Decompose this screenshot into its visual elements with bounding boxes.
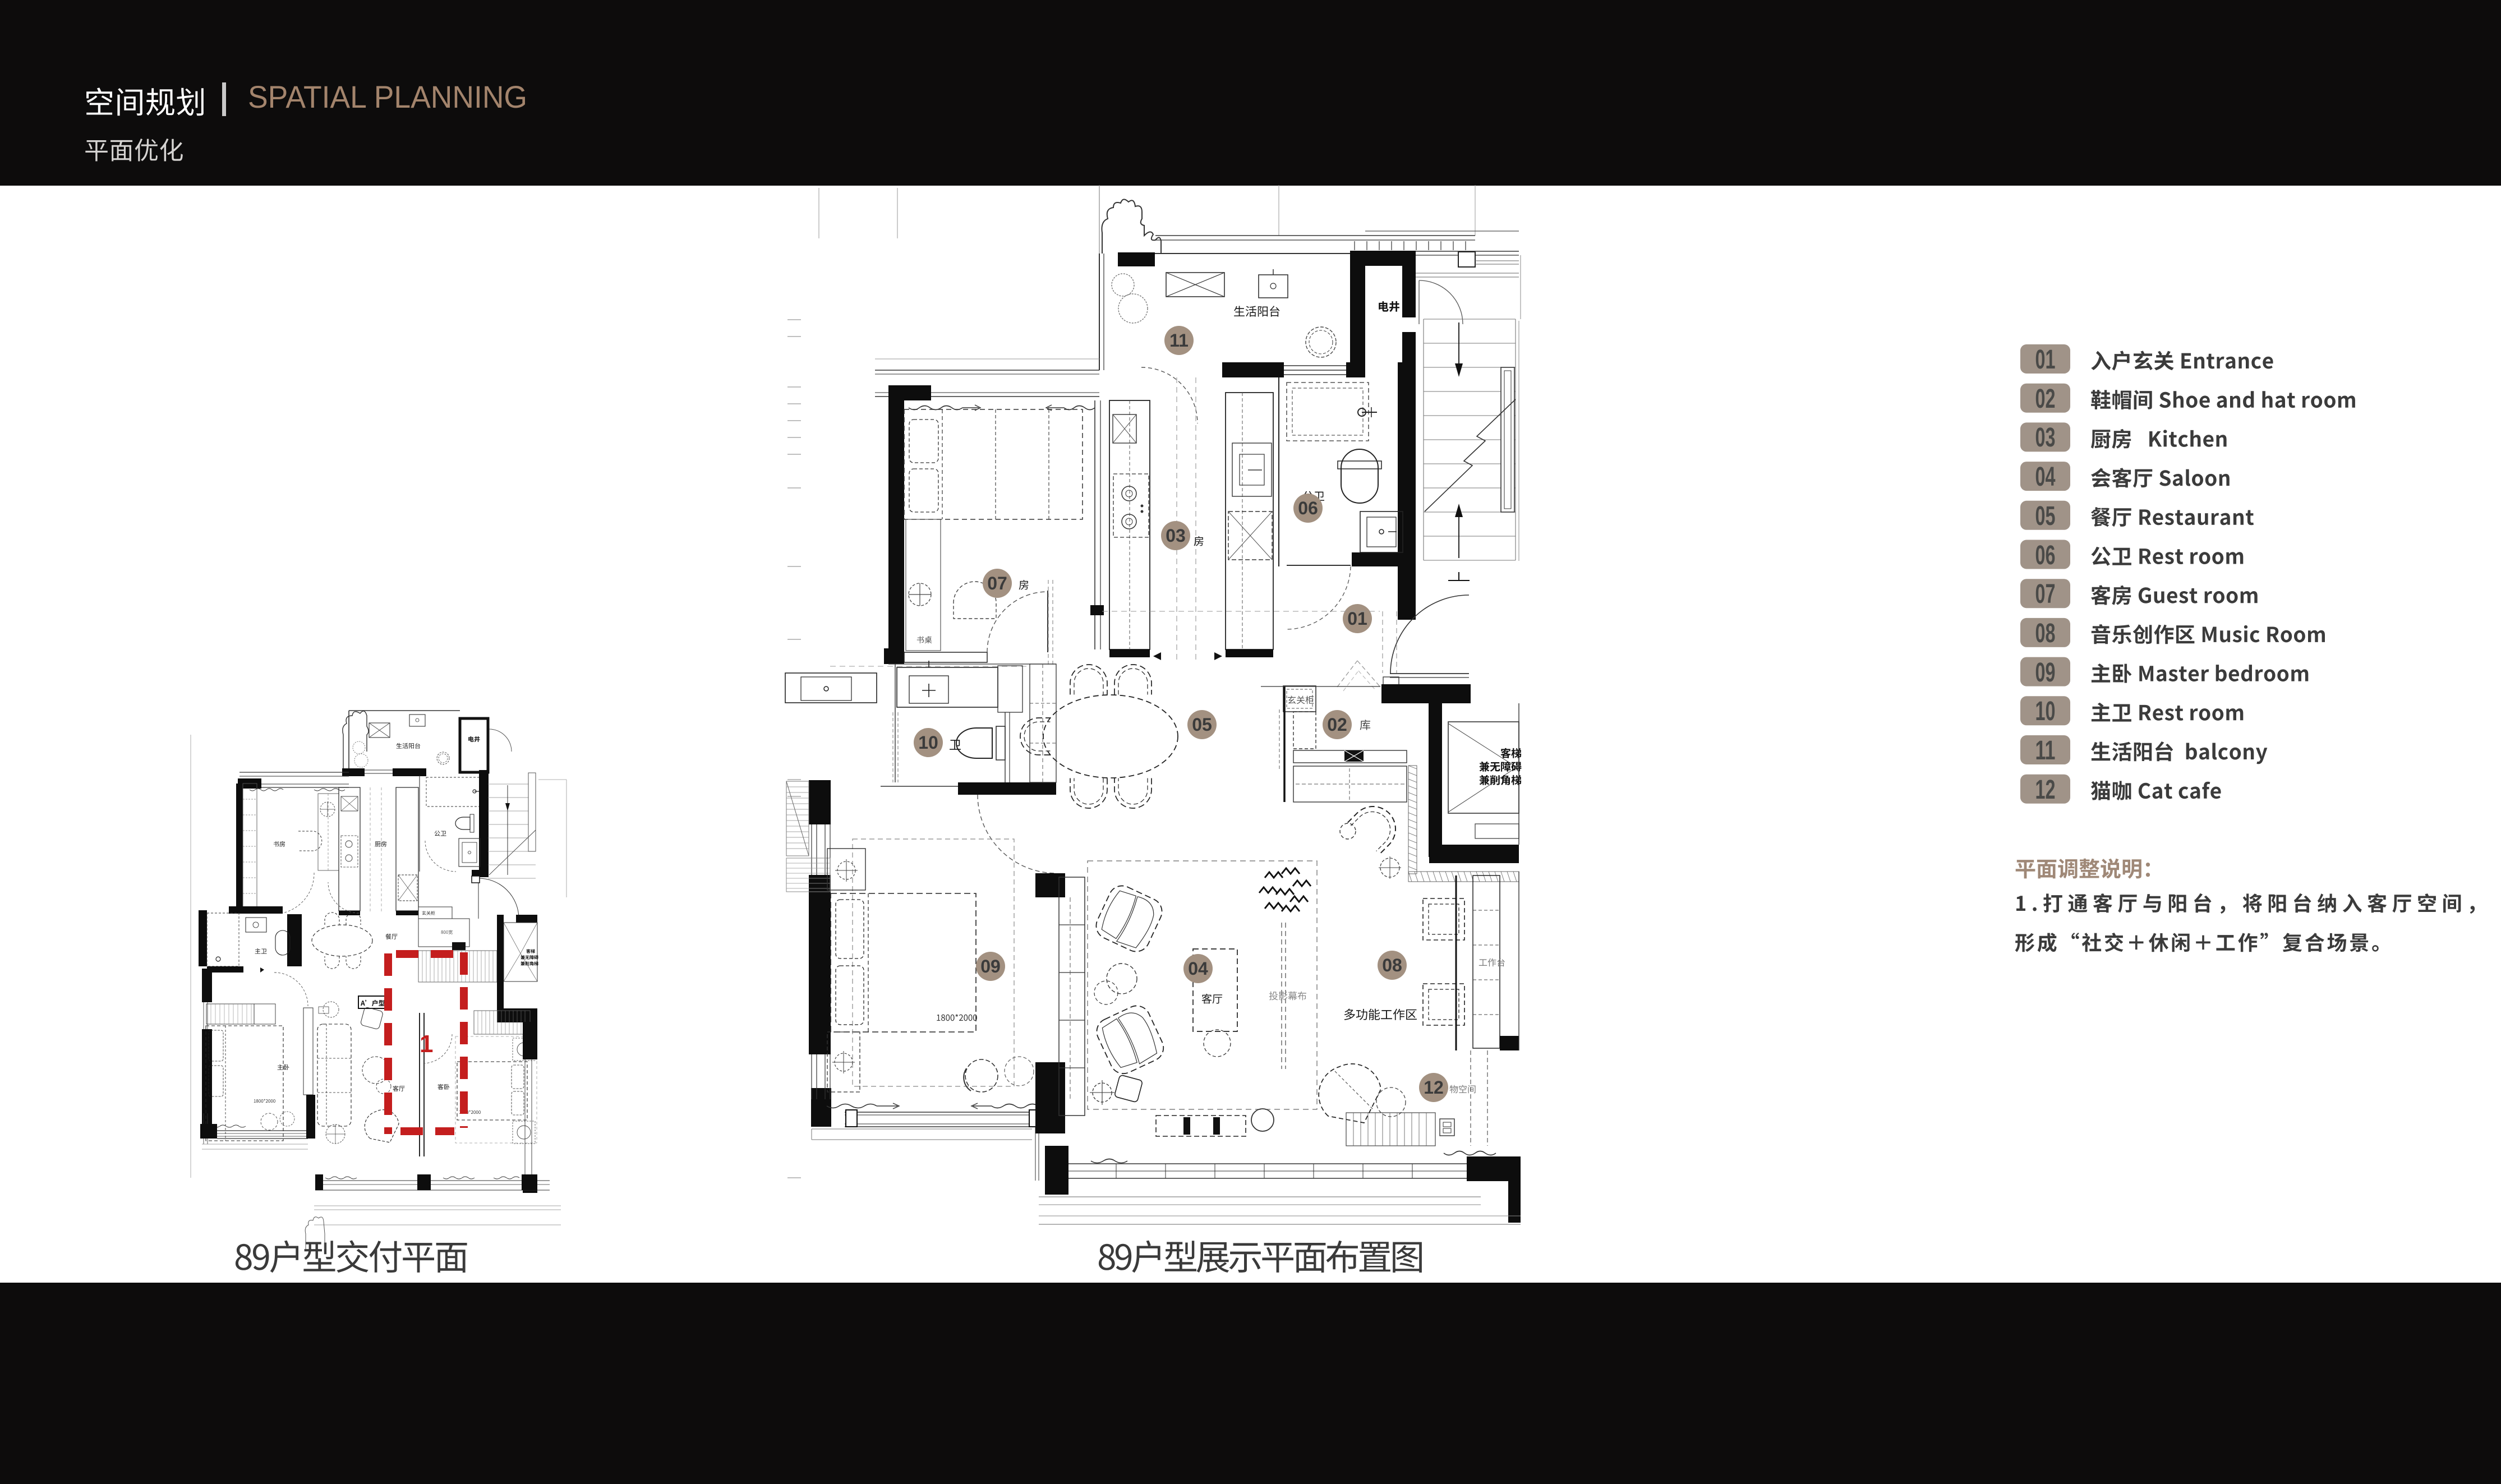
svg-text:05: 05 (1192, 715, 1212, 735)
svg-text:10: 10 (2035, 697, 2056, 726)
svg-text:1: 1 (420, 1030, 433, 1058)
svg-text:04: 04 (1188, 958, 1208, 979)
svg-text:03: 03 (1166, 526, 1186, 546)
svg-text:09: 09 (980, 956, 1001, 976)
svg-text:06: 06 (1298, 498, 1318, 518)
svg-text:02: 02 (2035, 384, 2056, 414)
svg-text:05: 05 (2035, 501, 2056, 531)
svg-text:11: 11 (1169, 330, 1189, 351)
svg-text:09: 09 (2035, 658, 2056, 688)
svg-text:04: 04 (2035, 462, 2056, 492)
svg-text:03: 03 (2035, 423, 2056, 453)
svg-text:SPATIAL PLANNING: SPATIAL PLANNING (248, 79, 527, 114)
svg-text:08: 08 (1382, 955, 1402, 975)
svg-text:06: 06 (2035, 541, 2056, 570)
svg-text:02: 02 (1327, 715, 1347, 735)
svg-text:12: 12 (2035, 775, 2056, 805)
svg-text:08: 08 (2035, 619, 2056, 648)
svg-text:10: 10 (918, 732, 938, 753)
svg-text:11: 11 (2035, 736, 2056, 766)
svg-text:07: 07 (987, 573, 1007, 593)
svg-text:12: 12 (1424, 1077, 1444, 1098)
svg-text:01: 01 (2035, 345, 2056, 375)
svg-text:07: 07 (2035, 579, 2056, 609)
